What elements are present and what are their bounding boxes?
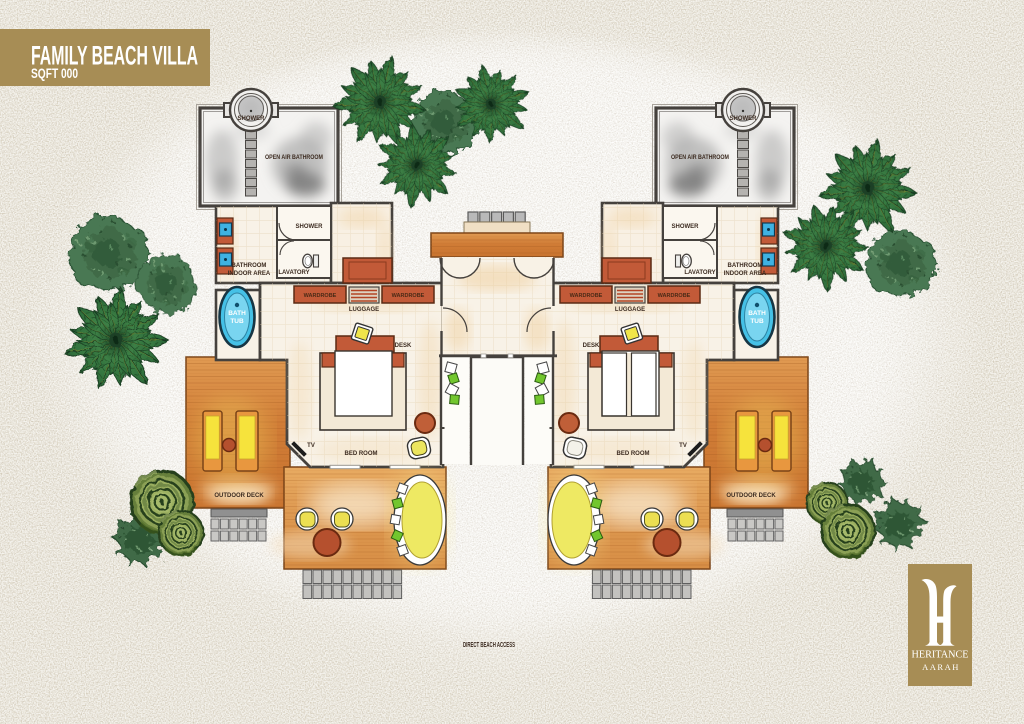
- svg-text:TV: TV: [307, 443, 315, 449]
- svg-text:AARAH: AARAH: [922, 662, 960, 672]
- svg-text:BATHROOM: BATHROOM: [232, 263, 267, 269]
- svg-text:OPEN AIR BATHROOM: OPEN AIR BATHROOM: [265, 155, 323, 161]
- svg-text:HERITANCE: HERITANCE: [912, 650, 969, 661]
- svg-text:BATHROOM: BATHROOM: [728, 263, 763, 269]
- svg-text:TUB: TUB: [750, 318, 764, 325]
- svg-text:INDOOR AREA: INDOOR AREA: [724, 271, 767, 277]
- svg-text:LAVATORY: LAVATORY: [278, 270, 309, 276]
- svg-text:BED ROOM: BED ROOM: [617, 451, 650, 457]
- svg-text:TUB: TUB: [230, 318, 244, 325]
- svg-text:OUTDOOR DECK: OUTDOOR DECK: [726, 493, 776, 499]
- svg-text:SHOWER: SHOWER: [730, 116, 758, 122]
- svg-text:OPEN AIR BATHROOM: OPEN AIR BATHROOM: [671, 155, 729, 161]
- svg-text:BED ROOM: BED ROOM: [345, 451, 378, 457]
- svg-text:WARDROBE: WARDROBE: [570, 293, 603, 299]
- svg-text:DIRECT BEACH ACCESS: DIRECT BEACH ACCESS: [463, 642, 515, 649]
- svg-text:SHOWER: SHOWER: [238, 116, 266, 122]
- svg-text:OUTDOOR DECK: OUTDOOR DECK: [214, 493, 264, 499]
- svg-text:LUGGAGE: LUGGAGE: [615, 307, 645, 313]
- svg-text:SQFT 000: SQFT 000: [31, 66, 78, 81]
- svg-text:BATH: BATH: [228, 310, 246, 317]
- svg-text:LUGGAGE: LUGGAGE: [349, 307, 379, 313]
- svg-text:LAVATORY: LAVATORY: [684, 270, 715, 276]
- svg-text:DESK: DESK: [395, 343, 412, 349]
- svg-text:BATH: BATH: [748, 310, 766, 317]
- svg-text:SHOWER: SHOWER: [296, 224, 324, 230]
- svg-text:SHOWER: SHOWER: [672, 224, 700, 230]
- svg-text:WARDROBE: WARDROBE: [392, 293, 425, 299]
- svg-text:DESK: DESK: [583, 343, 600, 349]
- svg-text:TV: TV: [679, 443, 687, 449]
- svg-text:WARDROBE: WARDROBE: [304, 293, 337, 299]
- svg-text:INDOOR AREA: INDOOR AREA: [228, 271, 271, 277]
- svg-text:WARDROBE: WARDROBE: [658, 293, 691, 299]
